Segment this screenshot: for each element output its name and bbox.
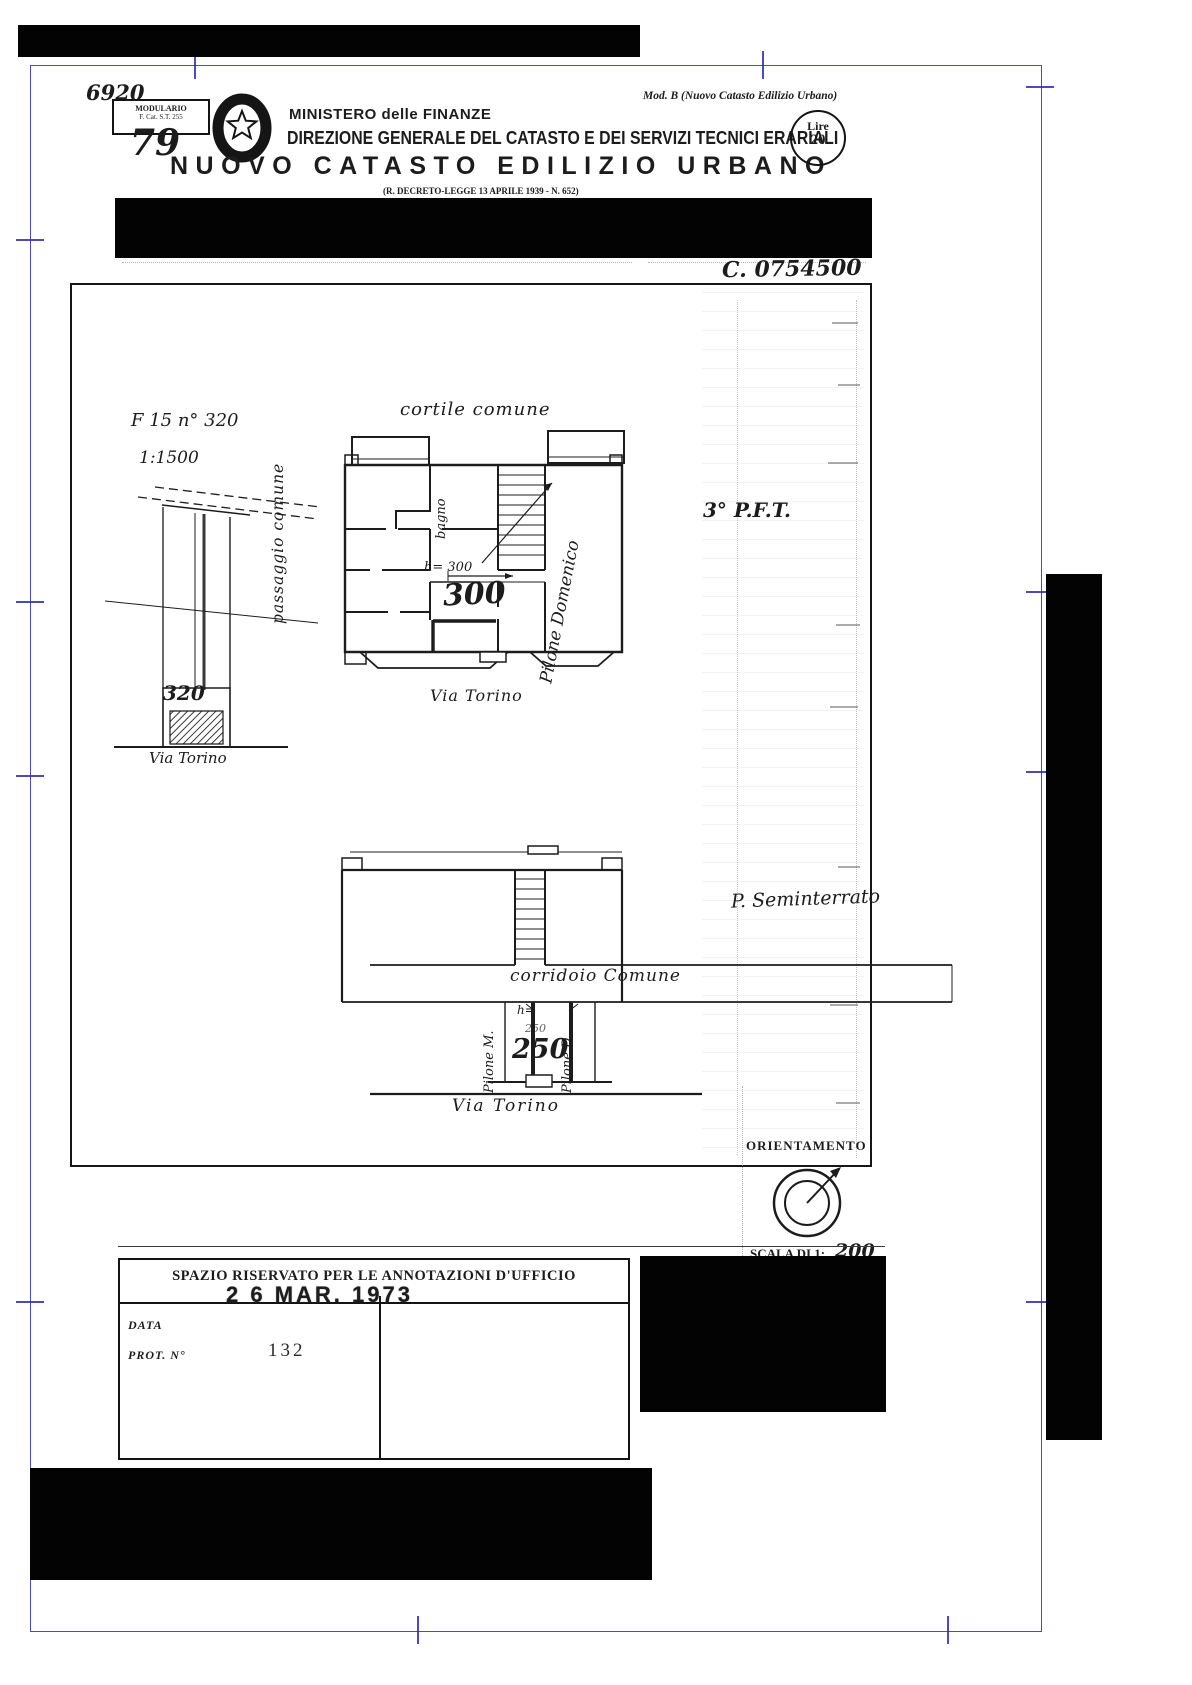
upper-floor-plan: [330, 425, 680, 715]
scan-artifact-dash: [836, 624, 860, 626]
redaction-bar-header: [115, 198, 872, 258]
revenue-stamp: Lire 20: [790, 110, 846, 166]
page-title: NUOVO CATASTO EDILIZIO URBANO: [170, 152, 832, 181]
modulario-subtitle: F. Cat. S.T. 255: [114, 113, 208, 121]
registration-tick: [16, 775, 44, 777]
registration-tick: [1026, 86, 1054, 88]
scan-artifact-dash: [828, 462, 858, 464]
direction-line: DIREZIONE GENERALE DEL CATASTO E DEI SER…: [287, 128, 838, 149]
scan-artifact-dash: [830, 706, 858, 708]
street-label-small-plan: Via Torino: [149, 749, 227, 767]
orientation-box-edge: [742, 1086, 743, 1268]
redaction-block-right: [1046, 574, 1102, 1440]
stamp-currency: Lire: [792, 120, 844, 132]
registration-tick: [947, 1616, 949, 1644]
modulario-title: MODULARIO: [114, 104, 208, 113]
registration-tick: [16, 239, 44, 241]
street-label-lower-plan: Via Torino: [452, 1096, 560, 1116]
cadastral-map-sketch: [100, 395, 320, 775]
scan-artifact-dash: [838, 384, 860, 386]
ministry-line: MINISTERO delle FINANZE: [289, 106, 491, 123]
protocol-label: PROT. N°: [128, 1348, 186, 1363]
title-subtext: (R. DECRETO-LEGGE 13 APRILE 1939 - N. 65…: [383, 186, 579, 196]
compass-icon: [765, 1156, 851, 1242]
street-label-upper-plan: Via Torino: [430, 686, 523, 705]
bath-label: bagno: [434, 498, 449, 539]
protocol-code-handwritten: C. 0754500: [722, 255, 862, 283]
parcel-number: 320: [163, 681, 205, 705]
cell-right-owner-label: Pilone D.: [560, 1034, 575, 1093]
scan-artifact-dash: [832, 322, 858, 324]
corridor-label: corridoio Comune: [510, 966, 681, 986]
faded-text-line: [122, 262, 632, 263]
redaction-bar-bottom: [30, 1468, 652, 1580]
passage-label: passaggio comune: [269, 463, 287, 624]
lower-height-prefix: h=: [517, 1003, 535, 1017]
registration-tick: [16, 1301, 44, 1303]
rule-line: [118, 1246, 885, 1247]
registration-tick: [762, 51, 764, 79]
form-model-label: Mod. B (Nuovo Catasto Edilizio Urbano): [643, 90, 837, 102]
upper-height-note: h= 300: [424, 560, 472, 575]
scanned-cadastral-document: 6920 MODULARIO F. Cat. S.T. 255 79 MINIS…: [0, 0, 1192, 1685]
protocol-number: 132: [268, 1340, 306, 1362]
office-box-divider: [379, 1296, 381, 1458]
cell-left-owner-label: Pilone M.: [482, 1030, 497, 1093]
registration-tick: [417, 1616, 419, 1644]
upper-height-value: 300: [442, 575, 506, 613]
date-stamp: 2 6 MAR. 1973: [226, 1282, 413, 1308]
courtyard-label: cortile comune: [400, 399, 550, 420]
registration-tick: [16, 601, 44, 603]
upper-floor-label: 3° P.F.T.: [703, 498, 791, 522]
date-label: DATA: [128, 1318, 163, 1333]
redaction-block-mid: [640, 1256, 886, 1412]
orientation-label: ORIENTAMENTO: [746, 1138, 867, 1154]
redaction-bar-top: [18, 25, 640, 57]
stamp-value: 20: [792, 132, 844, 148]
